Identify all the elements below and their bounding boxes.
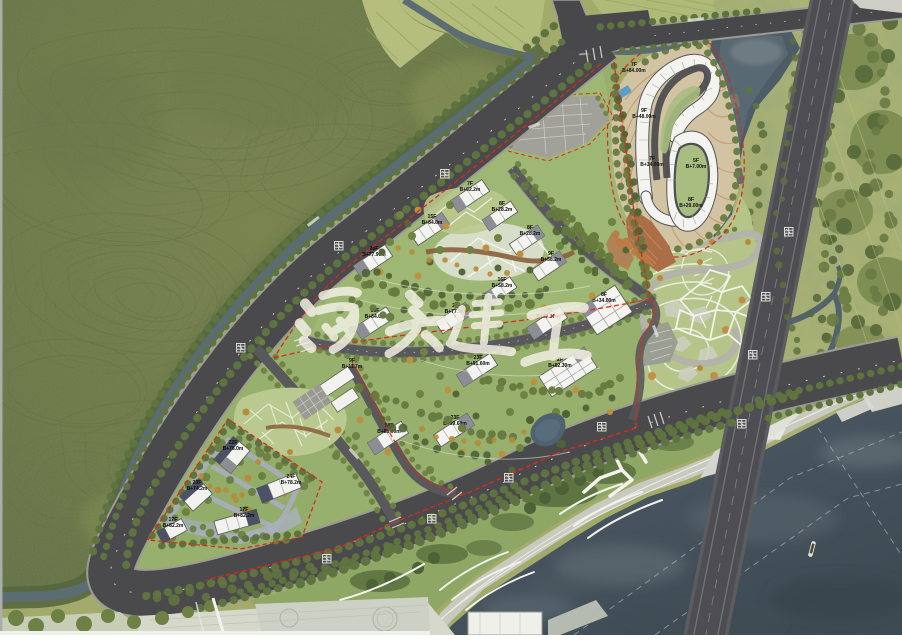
svg-text:B+58.2m: B+58.2m <box>541 257 562 263</box>
svg-text:B+74.2m: B+74.2m <box>187 486 208 492</box>
svg-text:B+29.00m: B+29.00m <box>679 203 703 209</box>
svg-text:B+91.60m: B+91.60m <box>466 361 490 367</box>
svg-text:B+78.2m: B+78.2m <box>281 480 302 486</box>
svg-text:B+28.2m: B+28.2m <box>492 207 513 213</box>
svg-text:B+11.7m: B+11.7m <box>342 364 363 370</box>
svg-text:B+84.00m: B+84.00m <box>622 68 646 74</box>
svg-text:B+58.2m: B+58.2m <box>492 283 513 289</box>
svg-text:B+82.30m: B+82.30m <box>548 363 572 369</box>
svg-text:B+28.2m: B+28.2m <box>520 231 541 237</box>
svg-text:B+76.0m: B+76.0m <box>223 446 244 452</box>
svg-text:B+62.2m: B+62.2m <box>460 187 481 193</box>
svg-text:B+34.00m: B+34.00m <box>640 162 664 168</box>
svg-text:B+82.2m: B+82.2m <box>163 523 184 529</box>
svg-text:B+34.00m: B+34.00m <box>592 298 616 304</box>
svg-text:B+84.0m: B+84.0m <box>422 220 443 226</box>
svg-text:B+82.2m: B+82.2m <box>234 513 255 519</box>
svg-text:B+7.00m: B+7.00m <box>686 164 707 170</box>
svg-text:B+48.00m: B+48.00m <box>632 114 656 120</box>
